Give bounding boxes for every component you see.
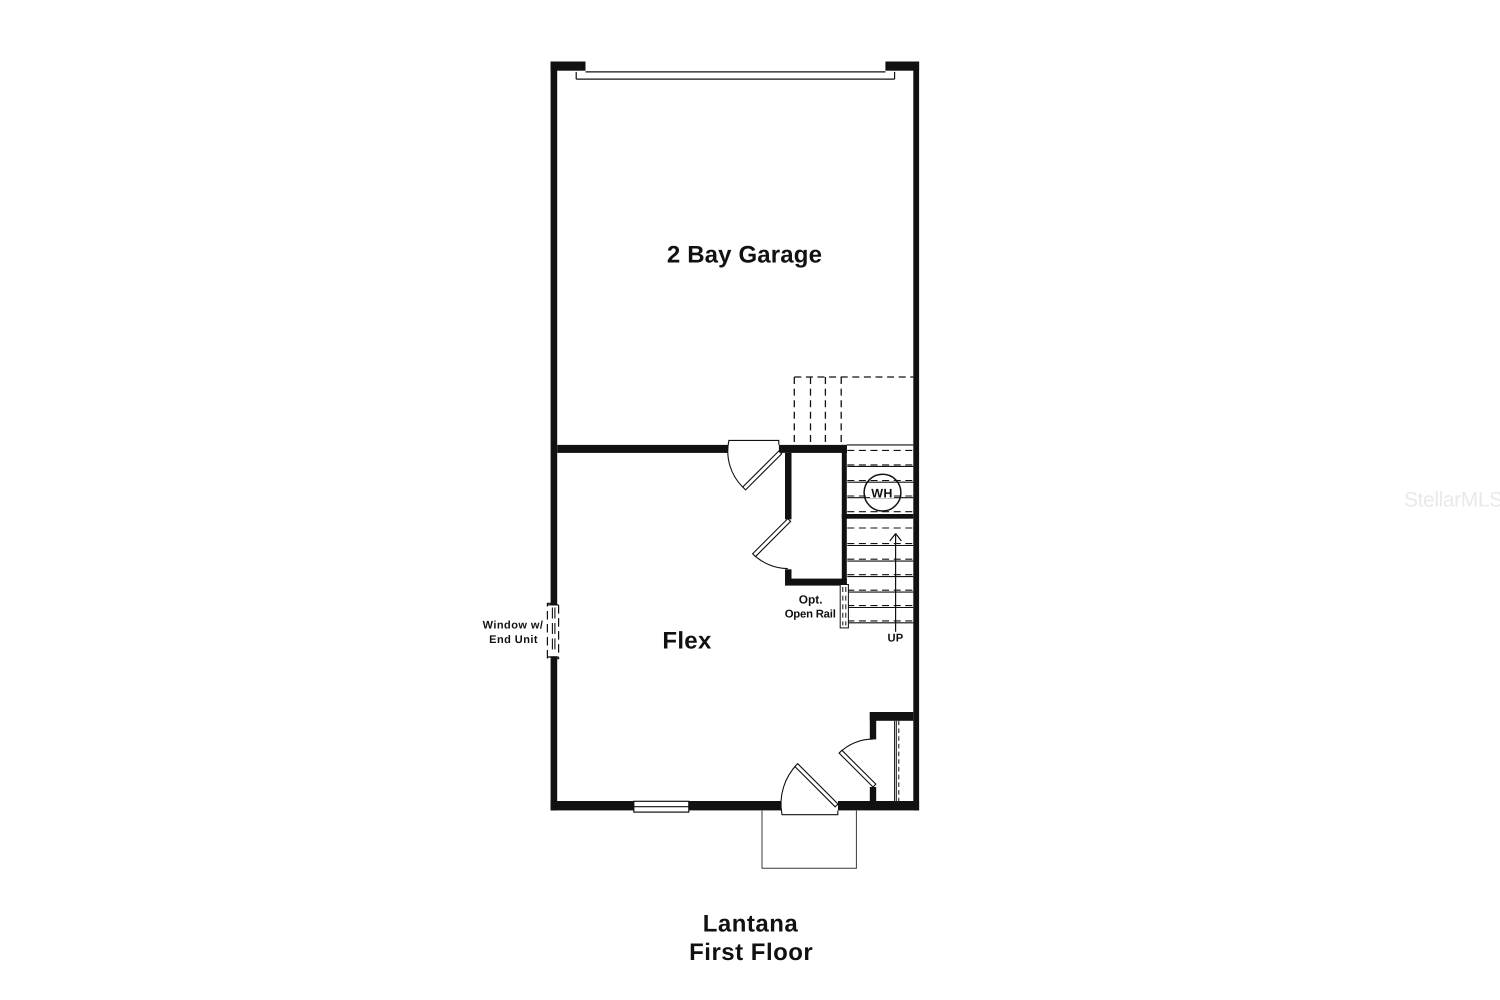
svg-text:First Floor: First Floor xyxy=(689,939,813,966)
svg-text:Flex: Flex xyxy=(662,627,712,654)
svg-text:End Unit: End Unit xyxy=(489,634,538,646)
svg-text:Opt.: Opt. xyxy=(799,592,823,606)
svg-text:WH: WH xyxy=(871,486,892,500)
svg-text:Window w/: Window w/ xyxy=(483,619,544,631)
svg-text:StellarMLS: StellarMLS xyxy=(1404,489,1500,512)
svg-text:Lantana: Lantana xyxy=(703,911,799,938)
svg-text:UP: UP xyxy=(888,632,904,644)
svg-text:Open Rail: Open Rail xyxy=(785,609,836,621)
svg-text:2 Bay Garage: 2 Bay Garage xyxy=(667,242,822,269)
